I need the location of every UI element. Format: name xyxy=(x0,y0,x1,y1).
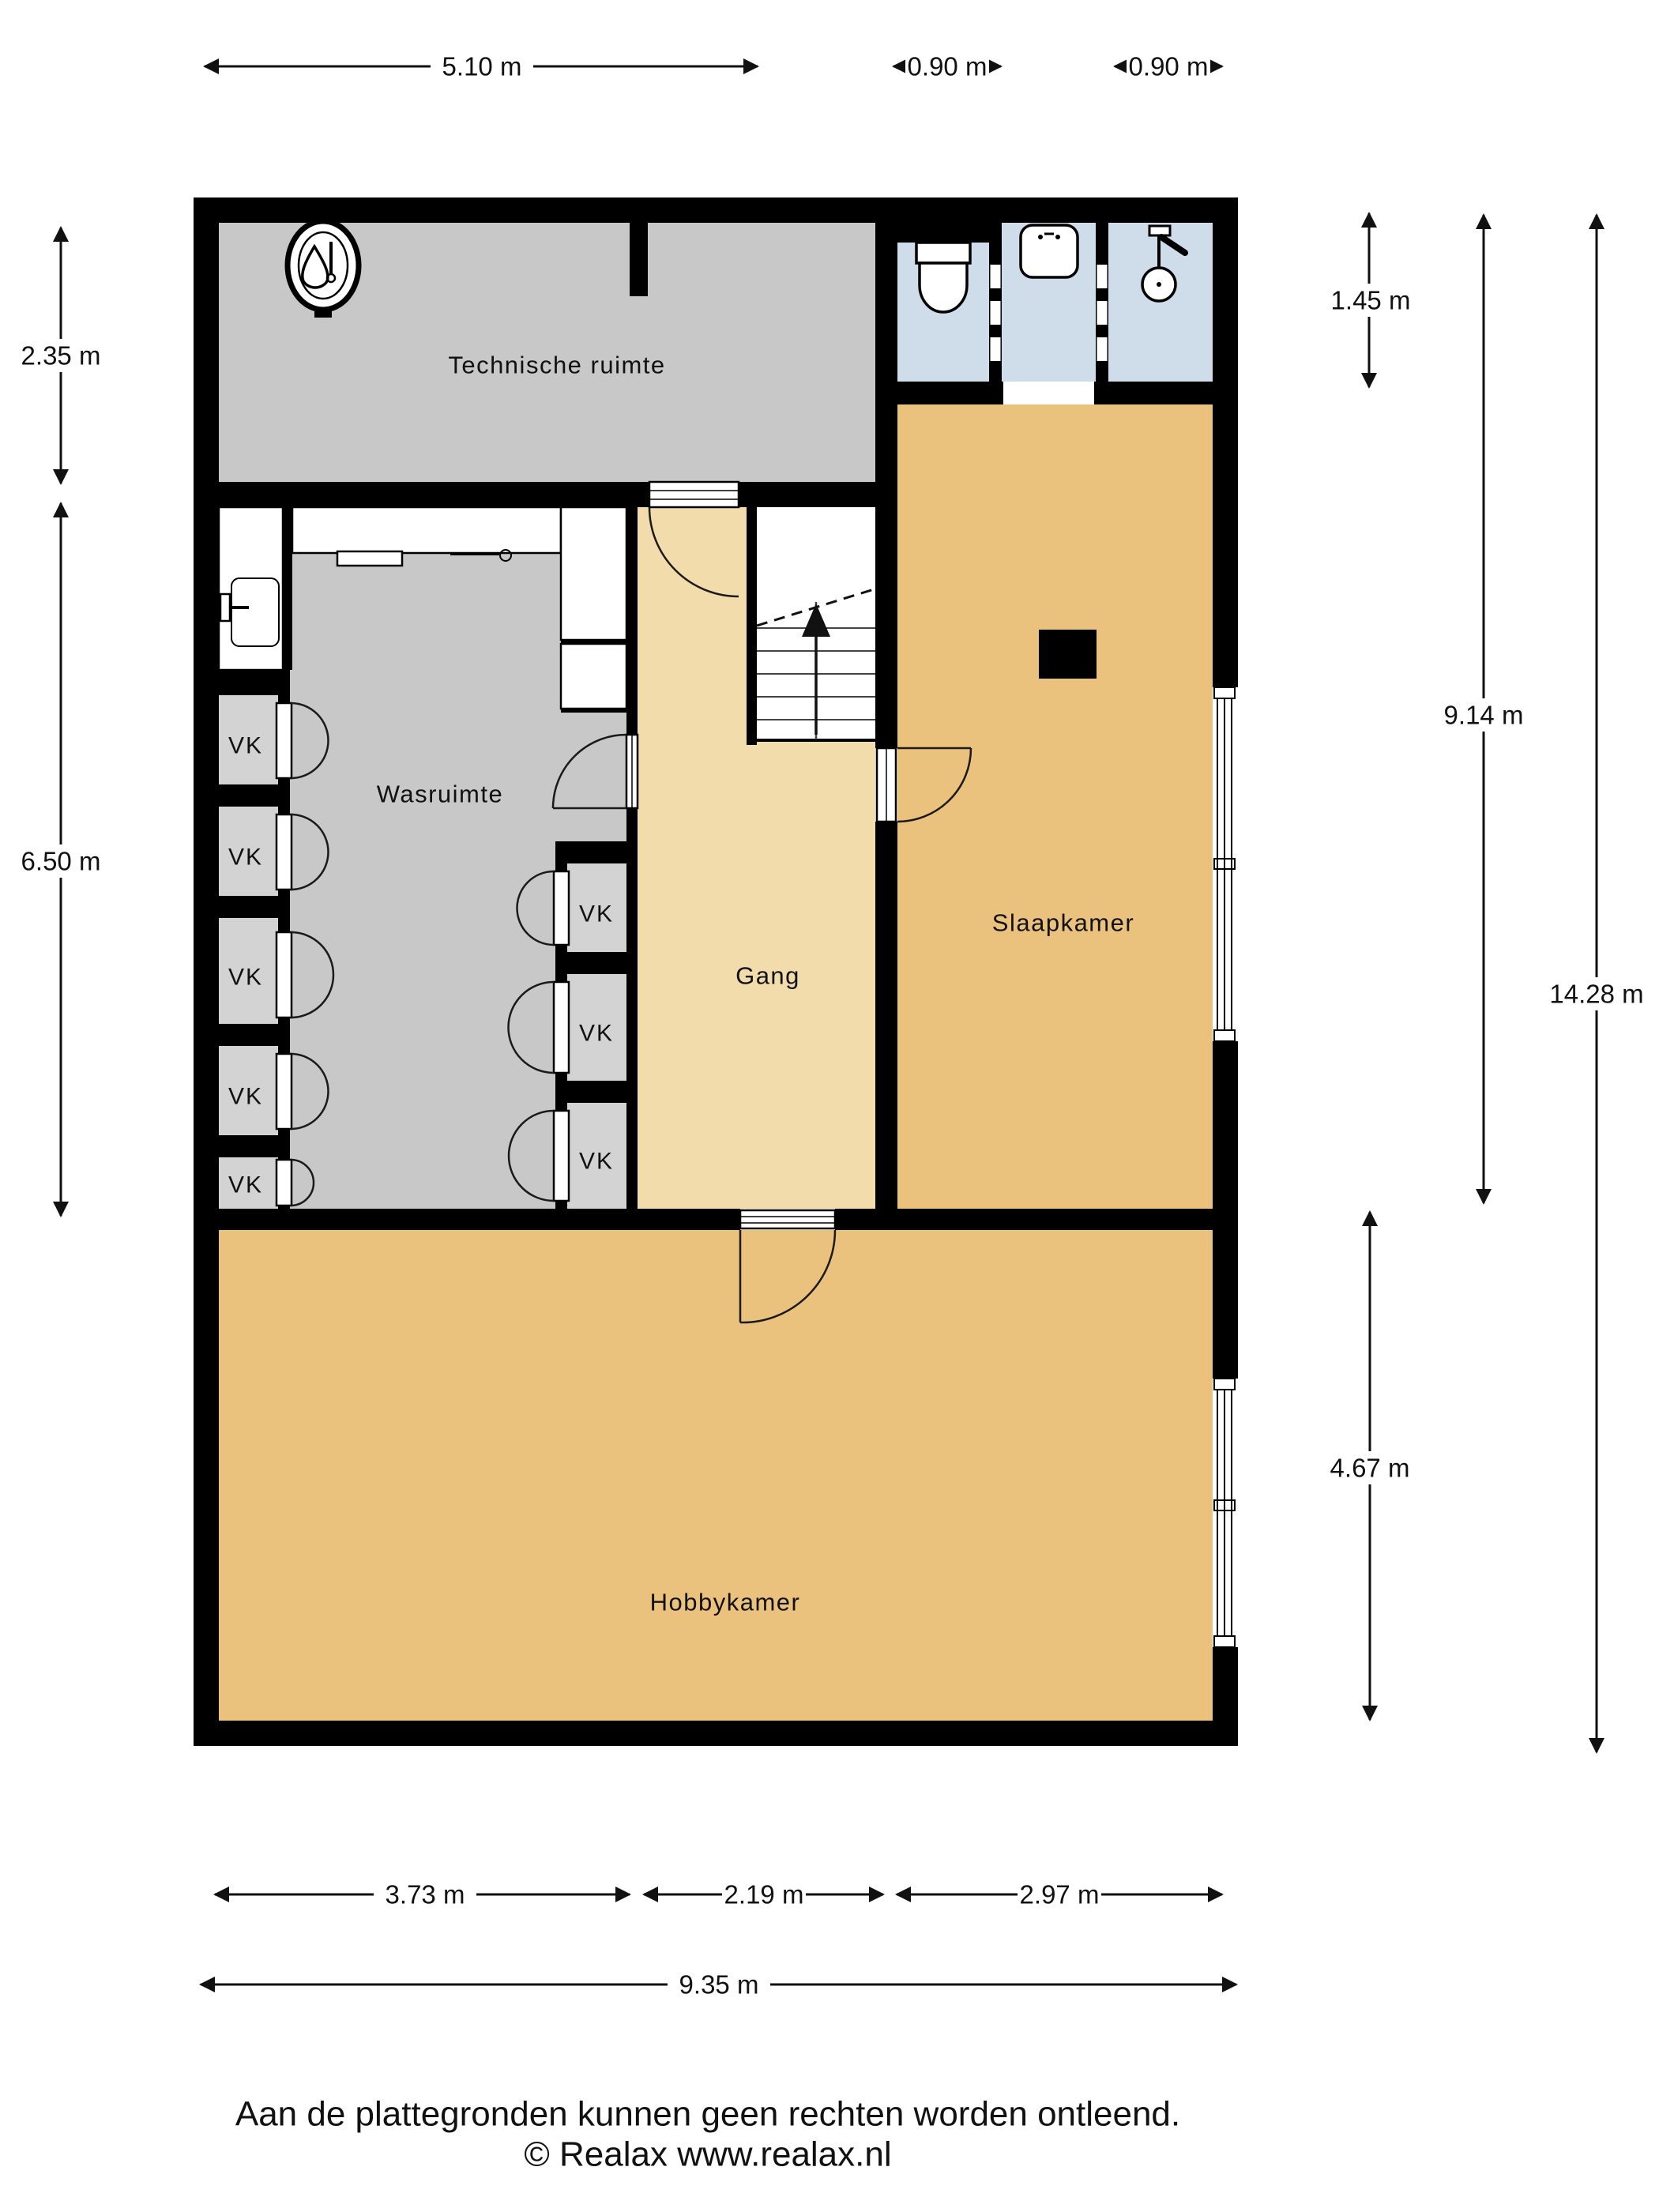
dim-bottom-1: 3.73 m xyxy=(386,1880,465,1909)
dimension-bottom: 3.73 m 2.19 m 2.97 m 9.35 m xyxy=(201,1878,1236,2001)
cabinet-low xyxy=(561,644,626,709)
room-slaapkamer xyxy=(897,404,1213,1209)
toilet-icon xyxy=(916,243,970,312)
window-hobbykamer xyxy=(1213,1379,1238,1647)
dim-top-3: 0.90 m xyxy=(1129,52,1209,81)
label-wasruimte: Wasruimte xyxy=(377,781,503,808)
label-gang: Gang xyxy=(735,962,800,990)
label-vk-6: VK xyxy=(579,901,614,927)
label-vk-1: VK xyxy=(228,733,263,759)
dim-right-3: 14.28 m xyxy=(1549,980,1643,1009)
label-vk-8: VK xyxy=(579,1149,614,1175)
label-technische-ruimte: Technische ruimte xyxy=(448,352,665,379)
dim-left-1: 2.35 m xyxy=(21,341,101,371)
dimension-top: 5.10 m 0.90 m 0.90 m xyxy=(205,49,1222,82)
dim-top-2: 0.90 m xyxy=(908,52,987,81)
dim-right-2: 9.14 m xyxy=(1444,701,1524,730)
dim-left-2: 6.50 m xyxy=(21,847,101,876)
window-slaapkamer xyxy=(1213,687,1238,1041)
dim-top-1: 5.10 m xyxy=(442,52,522,81)
staircase xyxy=(757,507,875,741)
dimension-left: 2.35 m 6.50 m xyxy=(12,228,110,1216)
utility-sink-faucet-icon xyxy=(220,594,230,621)
label-vk-4: VK xyxy=(228,1084,263,1110)
column-slaapkamer xyxy=(1039,630,1097,679)
dim-right-4: 4.67 m xyxy=(1330,1454,1410,1483)
floorplan-page: Technische ruimte Wasruimte Gang Slaapka… xyxy=(0,0,1659,2212)
dim-right-1: 1.45 m xyxy=(1331,286,1411,315)
label-vk-5: VK xyxy=(228,1172,263,1198)
counter-appliance xyxy=(337,551,402,566)
dimension-right: 1.45 m 9.14 m 14.28 m 4.67 m xyxy=(1321,213,1657,1752)
floorplan-drawing: Technische ruimte Wasruimte Gang Slaapka… xyxy=(0,0,1659,2212)
washbasin-icon xyxy=(1021,225,1078,277)
dim-bottom-3: 2.97 m xyxy=(1020,1880,1100,1909)
label-vk-3: VK xyxy=(228,965,263,991)
dim-bottom-2: 2.19 m xyxy=(724,1880,804,1909)
room-hobbykamer xyxy=(219,1230,1213,1721)
label-slaapkamer: Slaapkamer xyxy=(992,909,1134,937)
label-vk-2: VK xyxy=(228,845,263,871)
cabinet-tall xyxy=(561,507,626,640)
dim-bottom-4: 9.35 m xyxy=(679,1970,759,1999)
laundry-counter xyxy=(292,507,561,553)
label-hobbykamer: Hobbykamer xyxy=(650,1589,801,1616)
label-vk-7: VK xyxy=(579,1021,614,1047)
footer-disclaimer: Aan de plattegronden kunnen geen rechten… xyxy=(235,2095,1180,2134)
footer-copyright: © Realax www.realax.nl xyxy=(524,2135,891,2174)
